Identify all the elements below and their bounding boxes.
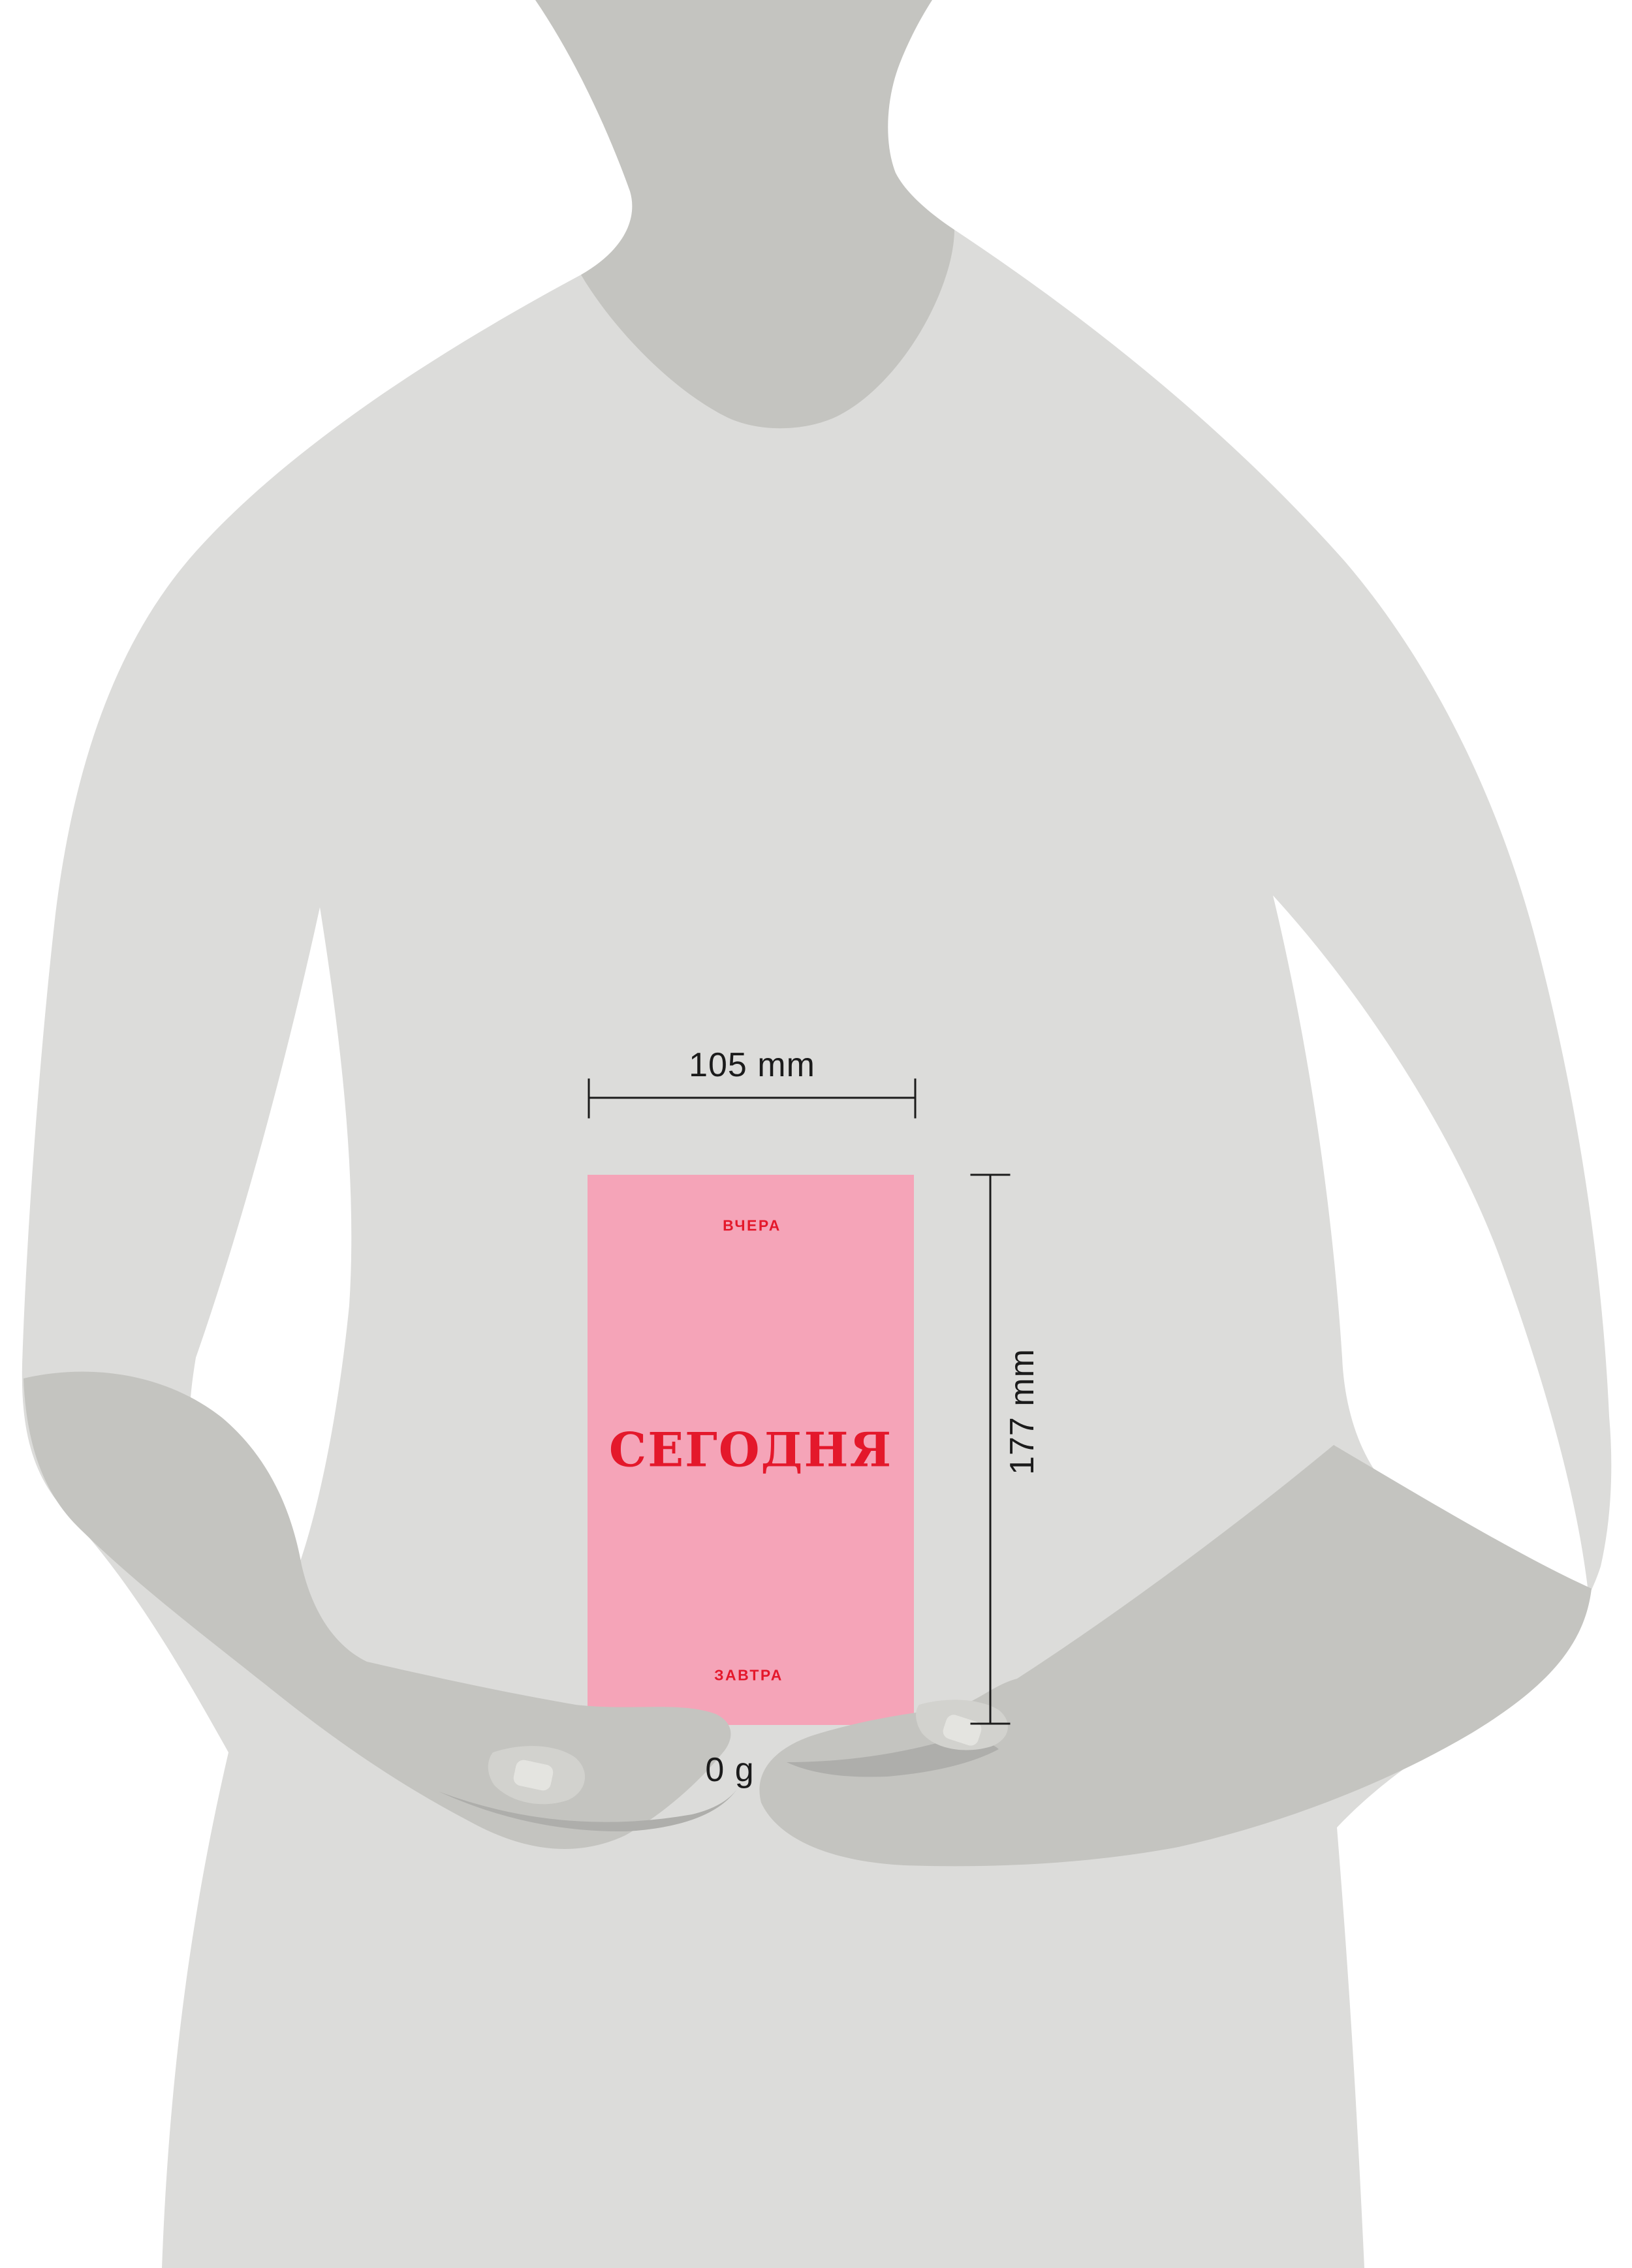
weight-label: 0 g bbox=[705, 1750, 754, 1790]
silhouette-graphic bbox=[0, 0, 1632, 2268]
booklet-title: СЕГОДНЯ bbox=[609, 1422, 892, 1478]
height-dimension-label: 177 mm bbox=[1003, 1348, 1042, 1475]
width-dimension-label: 105 mm bbox=[589, 1046, 915, 1085]
illustration-stage: ВЧЕРА СЕГОДНЯ ЗАВТРА 105 mm 177 mm 0 g bbox=[0, 0, 1632, 2268]
booklet-top-label: ВЧЕРА bbox=[723, 1217, 781, 1235]
booklet-bottom-label: ЗАВТРА bbox=[714, 1667, 783, 1685]
